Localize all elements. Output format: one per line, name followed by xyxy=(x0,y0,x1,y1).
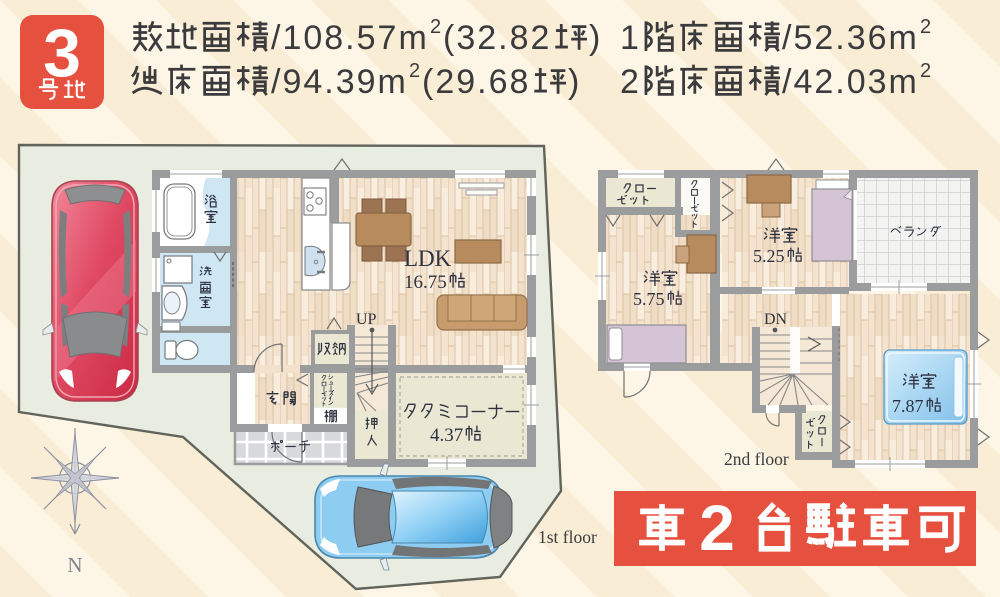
svg-text:N: N xyxy=(67,553,82,577)
svg-text:2: 2 xyxy=(430,16,441,38)
svg-text:(32.82: (32.82 xyxy=(443,19,551,57)
svg-text:UP: UP xyxy=(356,311,377,328)
svg-text:4.37: 4.37 xyxy=(430,425,463,446)
svg-text:5.75: 5.75 xyxy=(633,289,665,309)
svg-text:): ) xyxy=(589,19,600,57)
svg-text:5.25: 5.25 xyxy=(753,246,785,266)
svg-text:2: 2 xyxy=(620,63,639,101)
svg-text:): ) xyxy=(568,63,579,101)
svg-text:7.87: 7.87 xyxy=(892,396,924,416)
svg-text:/52.36m: /52.36m xyxy=(782,19,919,57)
svg-text:/94.39m: /94.39m xyxy=(271,63,408,101)
svg-text:2: 2 xyxy=(409,60,420,82)
svg-text:2nd floor: 2nd floor xyxy=(724,449,789,469)
svg-text:(29.68: (29.68 xyxy=(422,63,530,101)
svg-text:/108.57m: /108.57m xyxy=(271,19,429,57)
svg-text:1st floor: 1st floor xyxy=(538,527,597,547)
svg-text:DN: DN xyxy=(764,311,788,328)
svg-text:2: 2 xyxy=(920,60,931,82)
svg-text:2: 2 xyxy=(699,492,735,564)
svg-text:16.75: 16.75 xyxy=(404,272,447,293)
svg-text:LDK: LDK xyxy=(404,246,452,271)
svg-text:2: 2 xyxy=(920,16,931,38)
svg-text:/42.03m: /42.03m xyxy=(782,63,919,101)
svg-text:1: 1 xyxy=(620,19,639,57)
